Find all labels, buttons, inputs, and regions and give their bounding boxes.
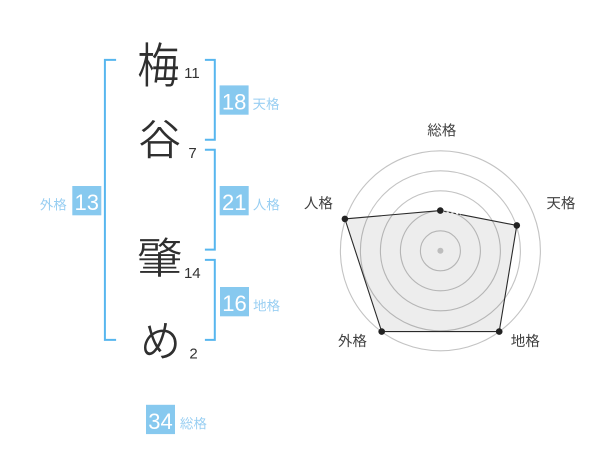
svg-text:13: 13 xyxy=(75,190,99,215)
svg-text:34: 34 xyxy=(148,409,172,434)
svg-text:2: 2 xyxy=(189,346,197,363)
svg-text:11: 11 xyxy=(184,65,200,82)
svg-text:14: 14 xyxy=(184,265,201,282)
svg-text:7: 7 xyxy=(188,145,196,162)
svg-text:18: 18 xyxy=(222,89,246,114)
svg-text:21: 21 xyxy=(222,190,246,215)
svg-text:16: 16 xyxy=(222,291,246,316)
